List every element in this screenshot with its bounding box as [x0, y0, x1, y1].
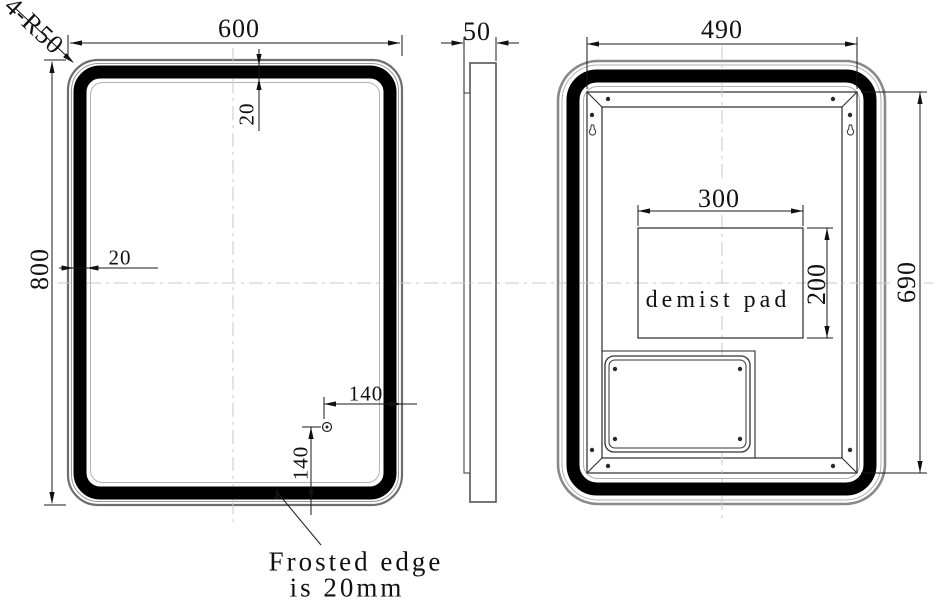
dim-front-width-label: 600 [218, 16, 260, 42]
dim-back-width-label: 490 [701, 17, 743, 43]
mirror-technical-drawing: 600 4-R50 800 20 20 140 140 50 490 690 3… [0, 0, 935, 600]
junction-box [605, 356, 750, 452]
dim-side-depth-label: 50 [463, 19, 491, 45]
dim-sensor-right-label: 140 [349, 384, 384, 405]
frosted-note-line2: is 20mm [290, 575, 405, 600]
dim-pad-width-label: 300 [698, 186, 740, 212]
frosted-note-line1: Frosted edge [269, 549, 444, 576]
dim-back-height-label: 690 [894, 261, 920, 303]
touch-sensor-icon [323, 423, 332, 432]
dim-frost-top-label: 20 [237, 103, 258, 126]
dim-frost-side-label: 20 [109, 248, 132, 269]
demist-pad-label: demist pad [646, 288, 791, 312]
dim-front-height-label: 800 [27, 248, 53, 290]
dim-sensor-bottom-label: 140 [291, 446, 312, 481]
dim-pad-height-label: 200 [804, 263, 830, 305]
drawing-geometry [0, 0, 935, 600]
